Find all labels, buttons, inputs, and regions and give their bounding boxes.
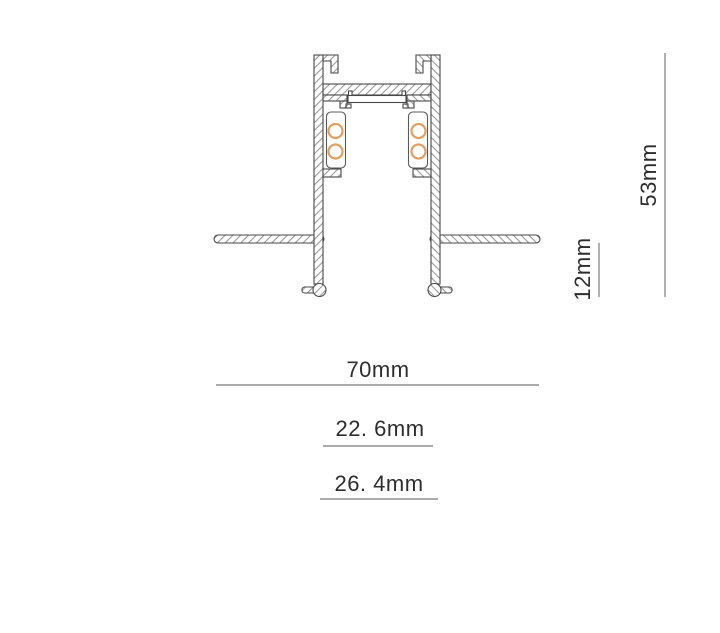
dimension-recess-depth: 12mm <box>570 237 599 300</box>
dimension-overall-height: 53mm <box>636 53 665 297</box>
cover-plate <box>348 96 406 103</box>
dim-label-70mm: 70mm <box>346 357 409 382</box>
top-crossbar <box>323 84 431 95</box>
dim-label-26-4mm: 26. 4mm <box>334 471 423 496</box>
technical-drawing-canvas: 53mm 12mm 70mm 22. 6mm 26. 4mm <box>0 0 720 633</box>
dimension-flange-width: 70mm <box>216 357 539 385</box>
profile-cross-section-drawing: 53mm 12mm 70mm 22. 6mm 26. 4mm <box>0 0 720 633</box>
dimension-inner-width: 22. 6mm <box>323 416 433 446</box>
dimension-outer-width: 26. 4mm <box>320 471 438 499</box>
dim-label-53mm: 53mm <box>636 143 661 206</box>
dim-label-12mm: 12mm <box>570 237 595 300</box>
dim-label-22-6mm: 22. 6mm <box>335 416 424 441</box>
